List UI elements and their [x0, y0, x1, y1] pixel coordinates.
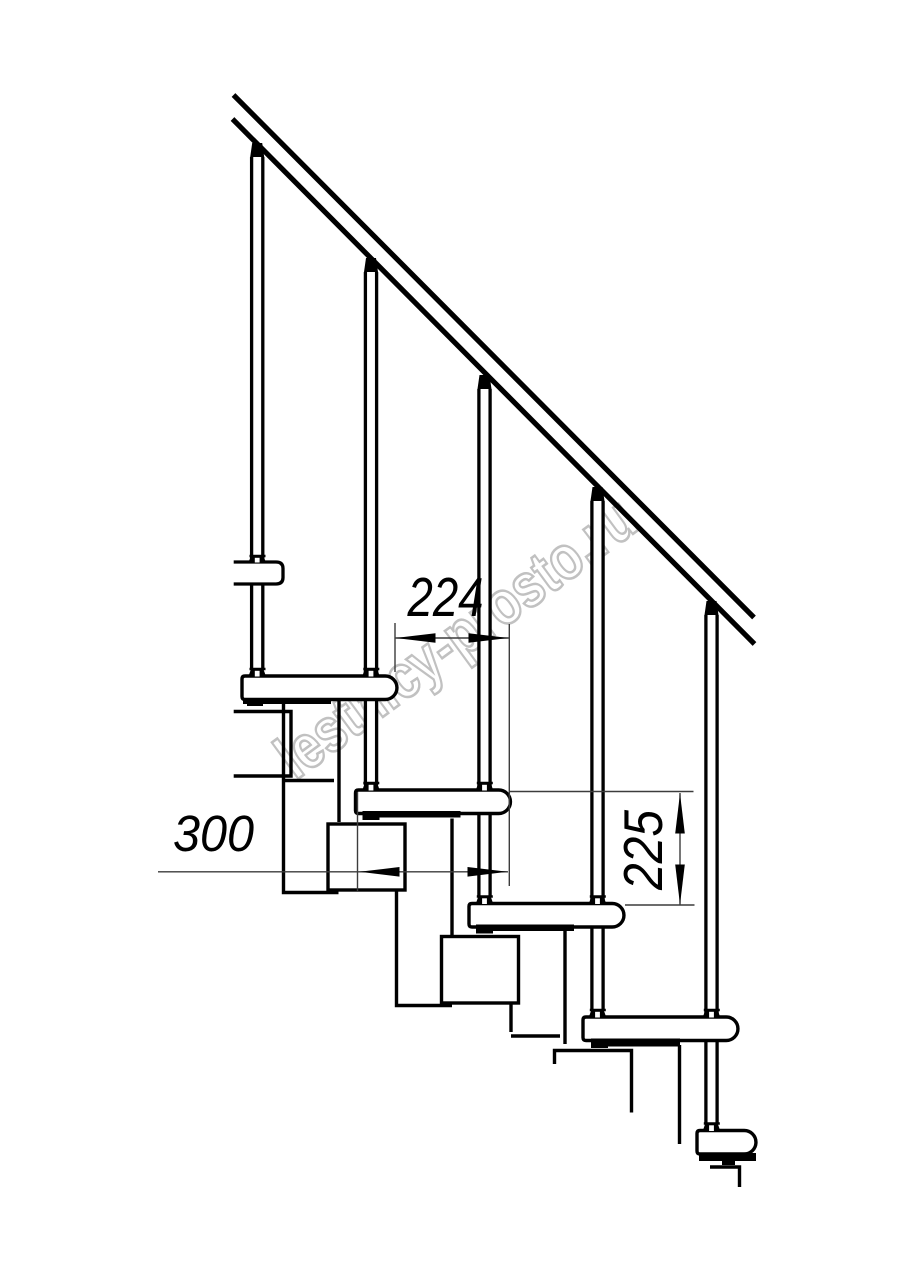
svg-text:224: 224 — [407, 566, 484, 628]
svg-text:225: 225 — [612, 810, 674, 891]
svg-text:300: 300 — [173, 805, 254, 862]
